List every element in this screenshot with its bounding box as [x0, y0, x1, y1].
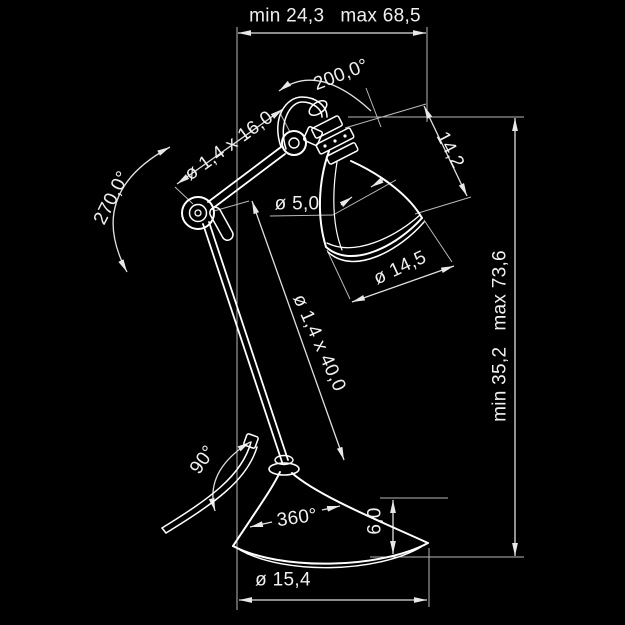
- base-height-label: 6,0: [366, 507, 385, 534]
- base: [233, 456, 428, 568]
- lower-arm-dimension: [252, 201, 344, 460]
- reach-dimension-label: min 24,3max 68,5: [249, 7, 421, 26]
- height-max-label: max 73,6: [490, 250, 511, 331]
- lower-arm: [203, 222, 288, 462]
- reach-max-label: max 68,5: [340, 6, 421, 27]
- reach-min-label: min 24,3: [249, 6, 324, 27]
- head-joint: [282, 126, 323, 155]
- height-min-label: min 35,2: [490, 347, 511, 422]
- height-dimension-label: min 35,2max 73,6: [491, 250, 510, 422]
- socket: [307, 98, 359, 165]
- shade-neck-diameter-label: ø 5,0: [275, 195, 320, 214]
- extension-lines: [175, 27, 524, 610]
- elbow-joint: [182, 197, 235, 242]
- shade: [320, 151, 424, 261]
- lamp-dimension-drawing: min 24,3max 68,5 200,0° 14,2 ø 1,4 x 16,…: [0, 0, 625, 625]
- elbow-angle-arc: [113, 147, 170, 272]
- base-diameter-label: ø 15,4: [255, 571, 311, 590]
